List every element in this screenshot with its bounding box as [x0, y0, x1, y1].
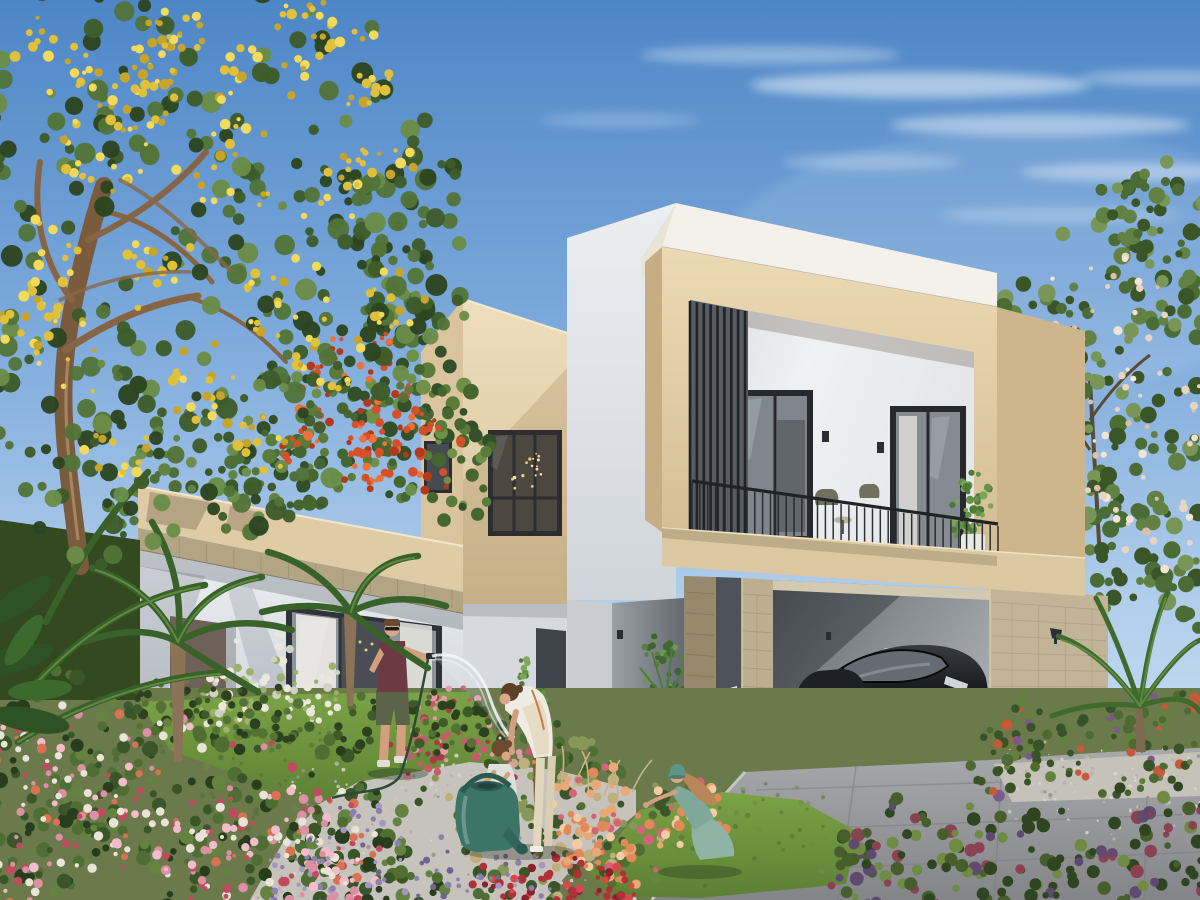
boy-face: [502, 752, 511, 761]
wall-sconce-icon: [877, 442, 884, 453]
porch-lamp-icon: [617, 630, 623, 639]
girl-cap-brim: [669, 775, 685, 779]
base-overhang-shadow: [463, 604, 567, 618]
man-shoe: [377, 760, 390, 767]
sunglasses-icon: [385, 627, 399, 631]
balcony-frame-left-face: [645, 247, 662, 532]
woman-shoe: [530, 846, 543, 852]
man-leg: [396, 724, 406, 758]
woman-face: [500, 694, 511, 705]
person-shadow: [658, 865, 742, 879]
tower-window-large: [488, 430, 562, 536]
wall-sconce-icon: [822, 431, 829, 442]
villa-rendering-scene: [0, 0, 1200, 900]
sapling-tie: [532, 760, 536, 764]
can-rose: [517, 844, 528, 855]
girl-hand: [643, 802, 649, 808]
balcony-frame-right-face: [997, 307, 1085, 562]
man-hair: [384, 619, 400, 626]
woman-hair-bun: [515, 685, 523, 693]
garage-socket-icon: [826, 632, 831, 640]
scene-canvas: [0, 0, 1200, 900]
boy-hair: [504, 740, 512, 748]
